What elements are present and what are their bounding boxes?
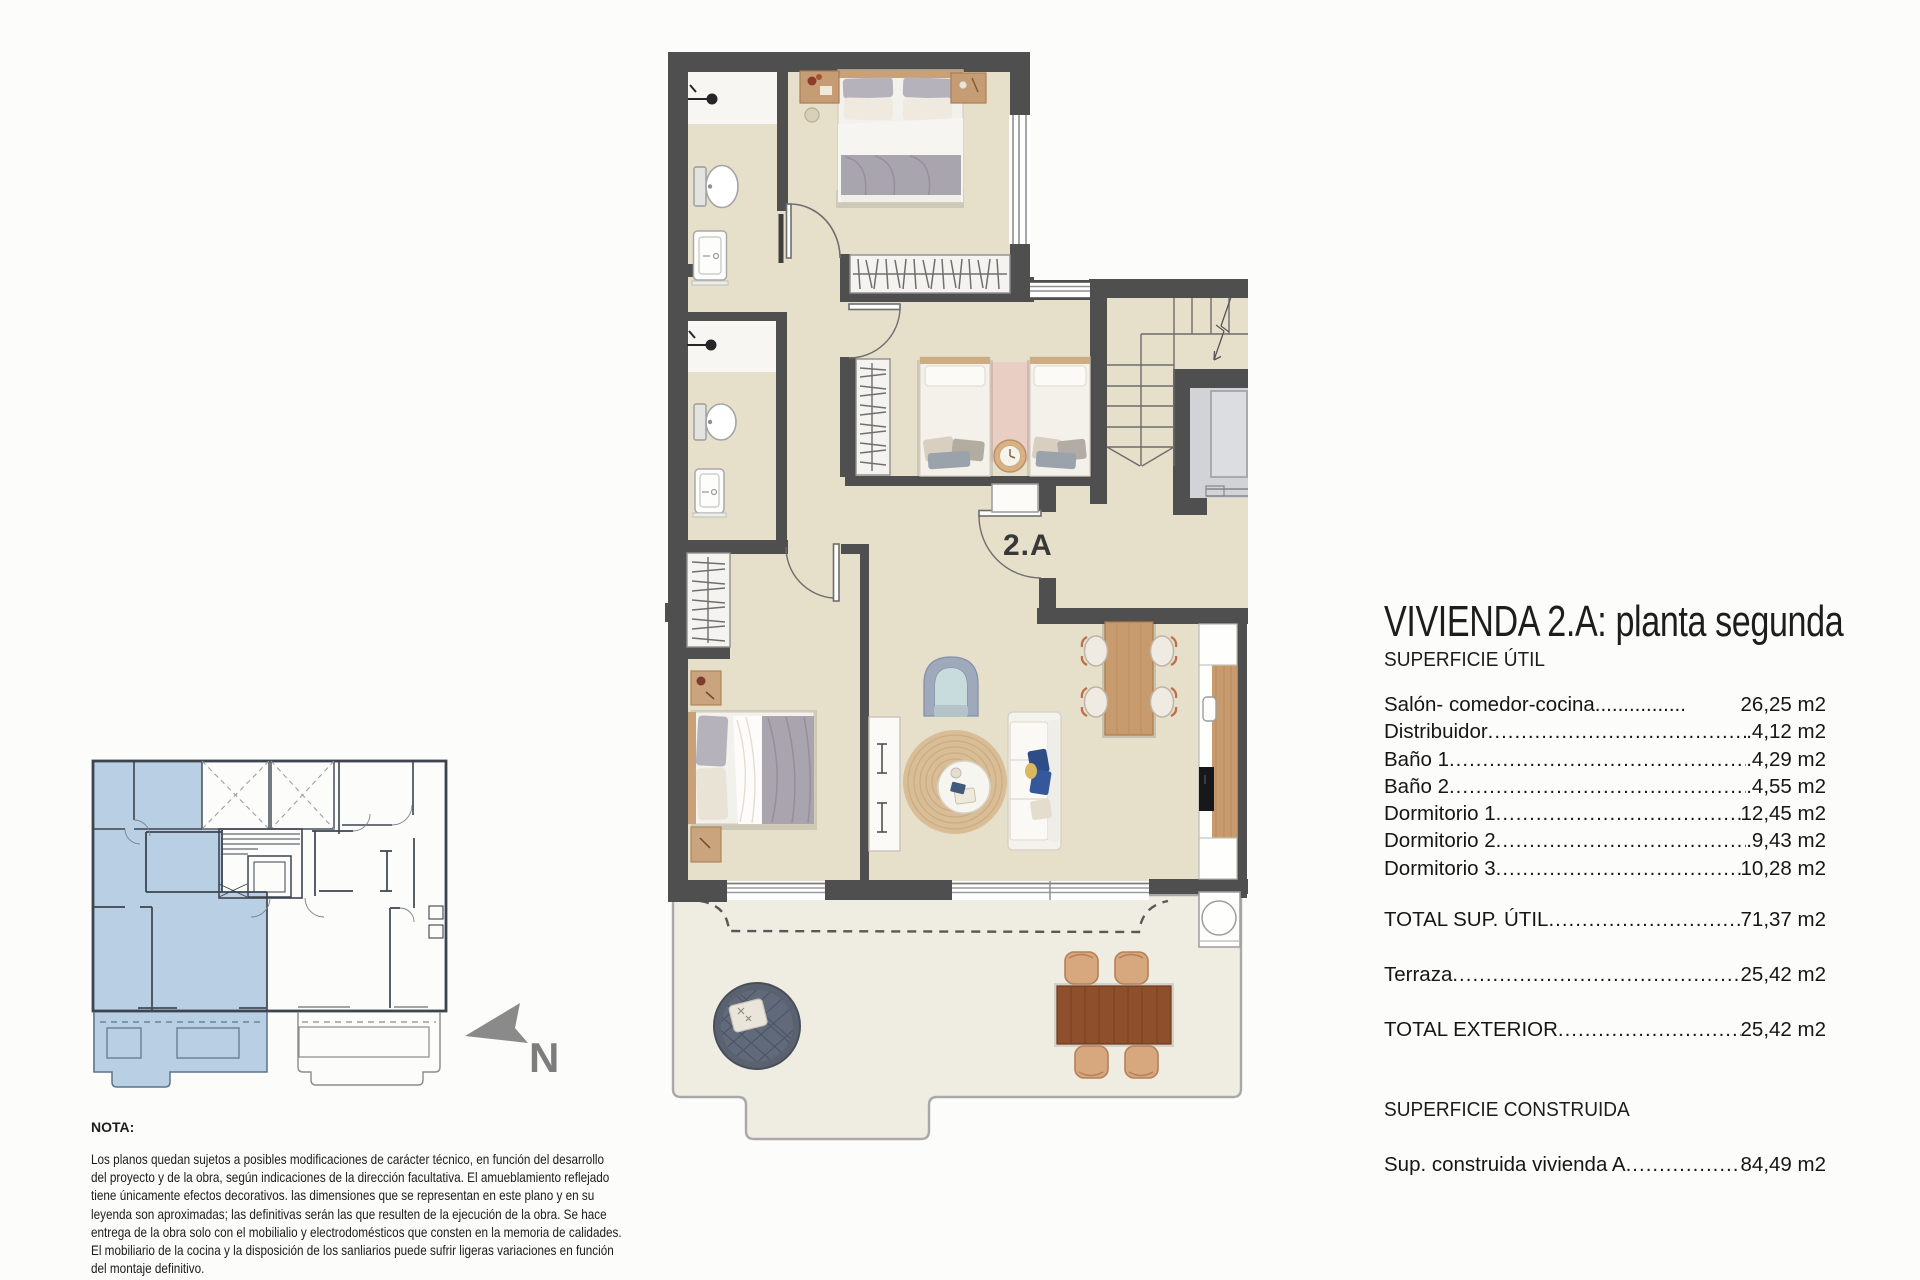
svg-text:2.A: 2.A [1003, 529, 1053, 562]
svg-text:N: N [529, 1034, 559, 1081]
